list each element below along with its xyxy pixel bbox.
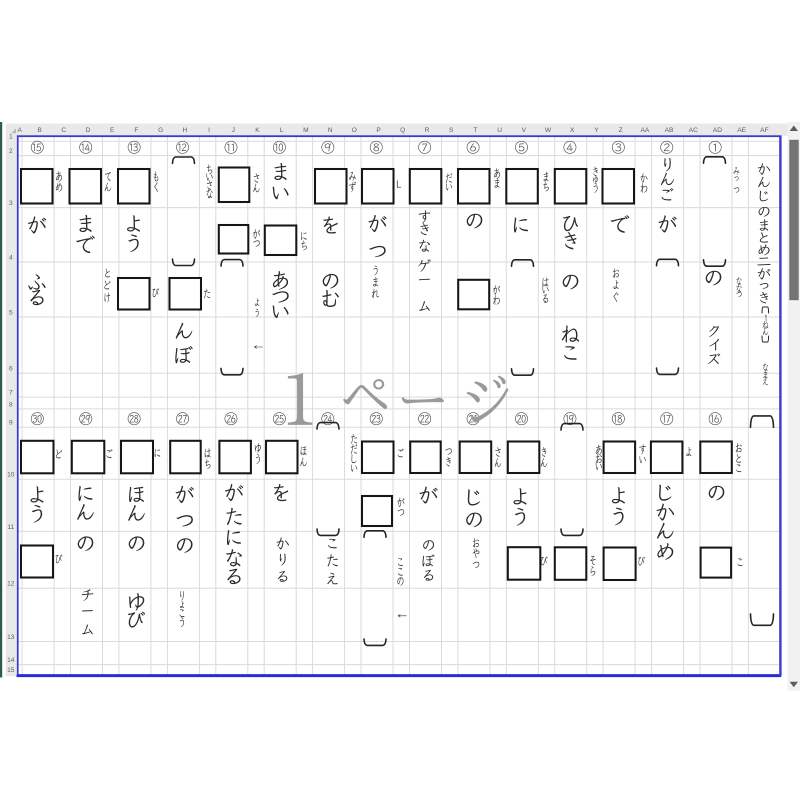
svg-text:2: 2: [9, 148, 13, 155]
svg-text:M: M: [303, 127, 309, 134]
svg-text:5: 5: [9, 309, 13, 316]
svg-text:15: 15: [7, 667, 15, 674]
svg-text:P: P: [376, 127, 381, 134]
svg-text:Y: Y: [594, 127, 599, 134]
svg-text:K: K: [255, 127, 260, 134]
svg-text:4: 4: [9, 254, 13, 261]
svg-text:3: 3: [9, 200, 13, 207]
svg-text:V: V: [522, 127, 527, 134]
svg-text:N: N: [328, 127, 333, 134]
svg-text:AC: AC: [689, 127, 698, 134]
svg-text:1: 1: [9, 134, 13, 141]
svg-text:12: 12: [7, 581, 15, 588]
svg-text:O: O: [352, 127, 357, 134]
svg-text:13: 13: [7, 634, 15, 641]
svg-text:L: L: [280, 127, 284, 134]
svg-text:AF: AF: [760, 127, 768, 134]
svg-text:U: U: [497, 127, 502, 134]
svg-text:9: 9: [9, 420, 13, 427]
svg-text:14: 14: [7, 657, 15, 664]
svg-text:AE: AE: [737, 127, 746, 134]
svg-text:I: I: [208, 127, 210, 134]
svg-text:8: 8: [9, 401, 13, 408]
svg-text:6: 6: [9, 366, 13, 373]
svg-text:T: T: [473, 127, 477, 134]
svg-text:F: F: [134, 127, 138, 134]
svg-text:J: J: [232, 127, 235, 134]
svg-text:10: 10: [7, 472, 15, 479]
svg-text:E: E: [110, 127, 115, 134]
svg-text:X: X: [570, 127, 575, 134]
svg-text:Q: Q: [400, 127, 405, 134]
svg-text:7: 7: [9, 390, 13, 397]
svg-text:S: S: [449, 127, 454, 134]
svg-text:R: R: [425, 127, 430, 134]
svg-text:G: G: [158, 127, 163, 134]
svg-text:11: 11: [7, 524, 14, 531]
svg-text:A: A: [17, 127, 22, 134]
svg-text:C: C: [61, 127, 66, 134]
svg-text:AA: AA: [640, 127, 649, 134]
svg-text:W: W: [545, 127, 552, 134]
svg-text:H: H: [182, 127, 187, 134]
svg-text:D: D: [86, 127, 91, 134]
svg-text:AB: AB: [665, 127, 674, 134]
svg-text:AD: AD: [713, 127, 722, 134]
svg-text:B: B: [37, 127, 42, 134]
svg-text:Z: Z: [619, 127, 623, 134]
